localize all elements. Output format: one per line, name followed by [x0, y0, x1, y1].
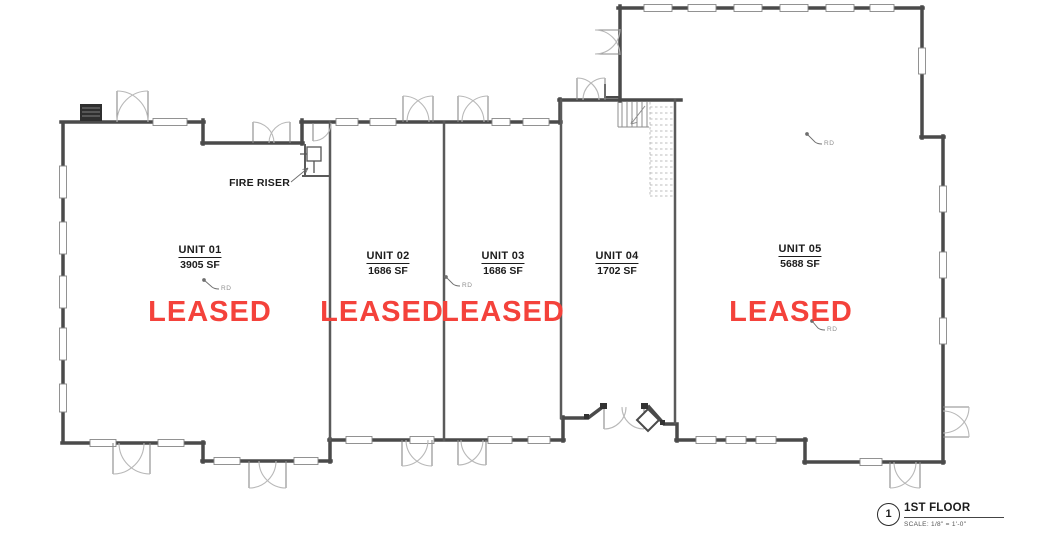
roof-drain-label: RD: [827, 326, 837, 333]
unit-03-status: LEASED: [441, 296, 565, 329]
unit-02-label: UNIT 02 1686 SF: [366, 246, 409, 277]
floor-plan-drawing: UNIT 01 3905 SF UNIT 02 1686 SF UNIT 03 …: [0, 0, 1058, 556]
unit-01-label: UNIT 01 3905 SF: [178, 240, 221, 271]
drawing-scale: SCALE: 1/8" = 1'-0": [904, 521, 966, 528]
unit-01-status: LEASED: [148, 296, 272, 329]
windows: [60, 5, 947, 466]
unit-03-name: UNIT 03: [481, 250, 524, 264]
roof-drain-label: RD: [221, 285, 231, 292]
unit-01-area: 3905 SF: [178, 259, 221, 271]
unit-05-status: LEASED: [729, 296, 853, 329]
stair: [618, 102, 675, 196]
unit-05-area: 5688 SF: [778, 258, 821, 270]
unit-02-name: UNIT 02: [366, 250, 409, 264]
unit-05-name: UNIT 05: [778, 243, 821, 257]
drawing-title: 1ST FLOOR: [904, 502, 1004, 518]
unit-04-name: UNIT 04: [595, 250, 638, 264]
exterior-walls: [61, 6, 944, 463]
unit-03-label: UNIT 03 1686 SF: [481, 246, 524, 277]
door-swings: [113, 29, 969, 488]
sheet-number-bubble: 1: [877, 503, 900, 526]
floor-plan-linework: [0, 0, 1058, 556]
roof-drain-label: RD: [824, 140, 834, 147]
unit-02-status: LEASED: [320, 296, 444, 329]
unit-02-area: 1686 SF: [366, 265, 409, 277]
unit-04-label: UNIT 04 1702 SF: [595, 246, 638, 277]
fire-riser-label: FIRE RISER: [180, 177, 290, 189]
unit-03-area: 1686 SF: [481, 265, 524, 277]
electrical-panel: [80, 104, 102, 121]
roof-drain-label: RD: [462, 282, 472, 289]
unit-01-name: UNIT 01: [178, 244, 221, 258]
unit-05-label: UNIT 05 5688 SF: [778, 239, 821, 270]
unit-04-area: 1702 SF: [595, 265, 638, 277]
